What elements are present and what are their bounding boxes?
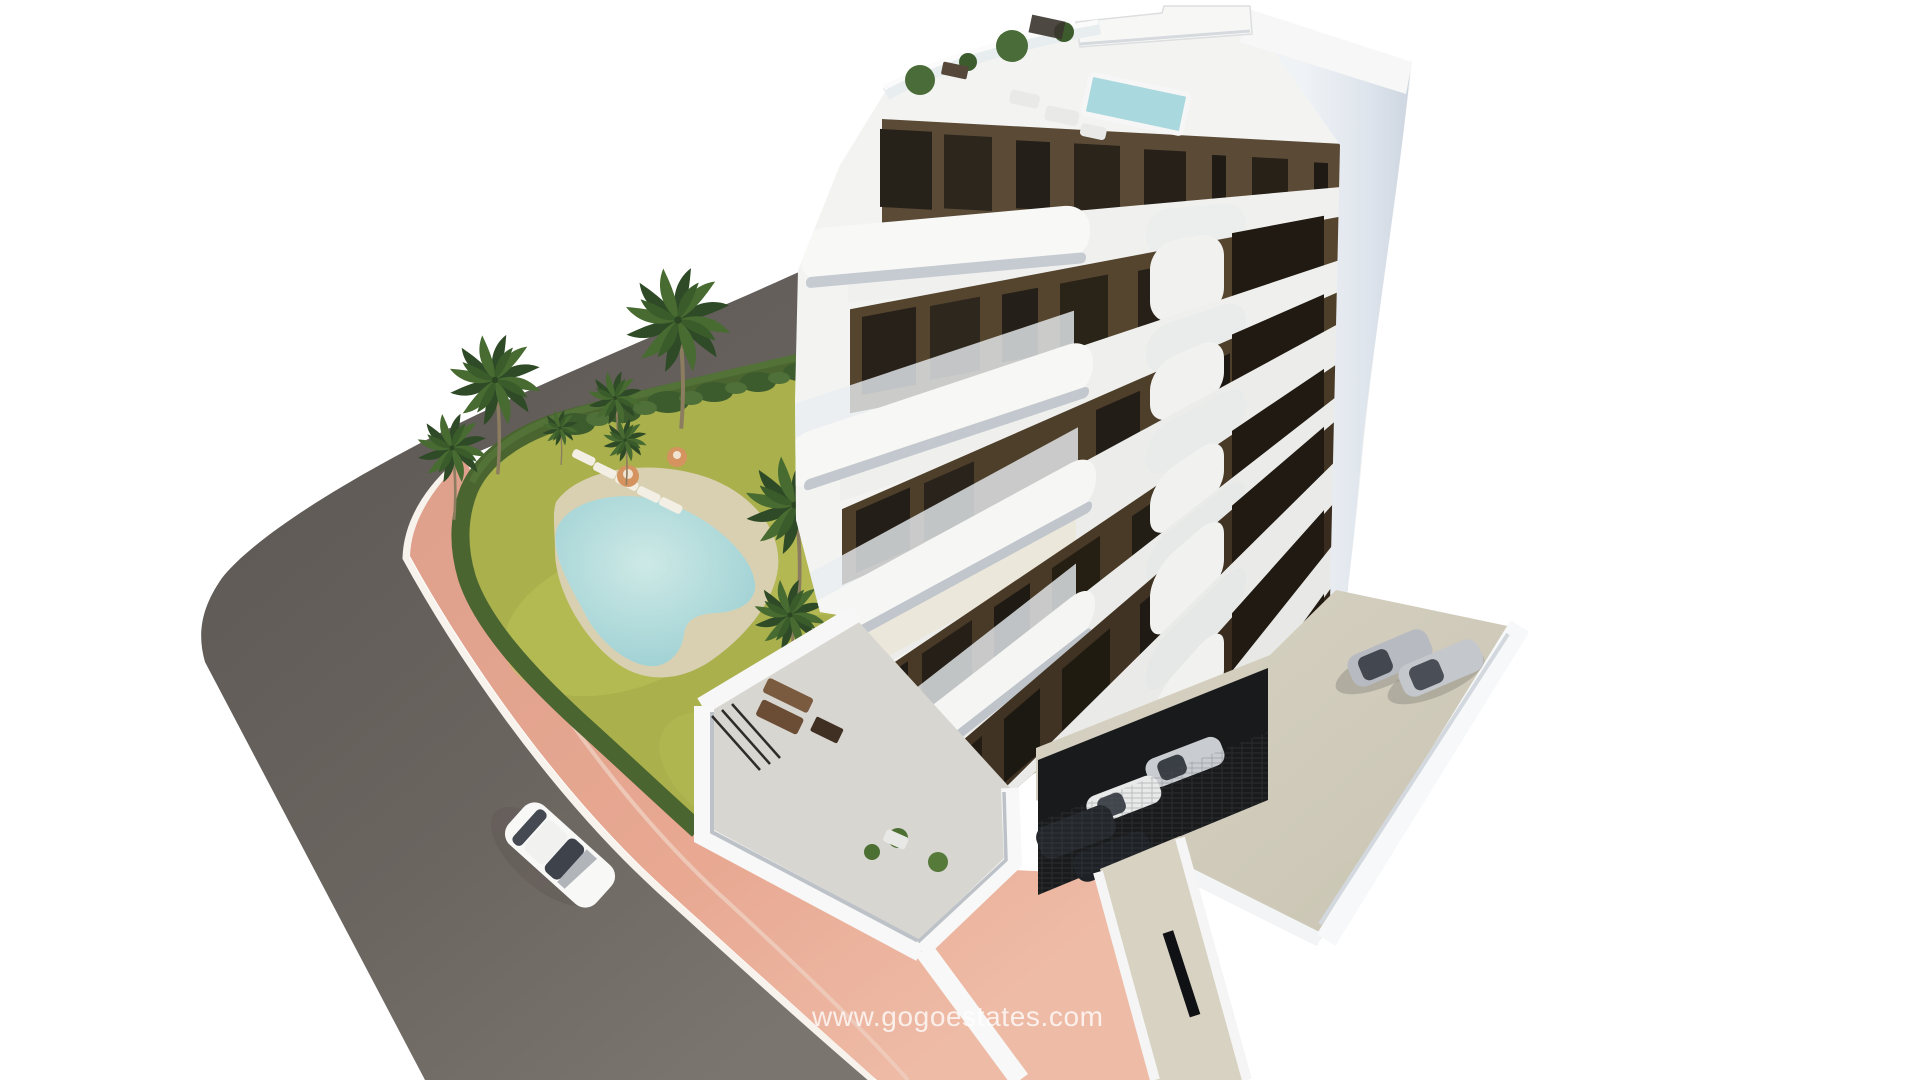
svg-text:www.gogoestates.com: www.gogoestates.com (811, 1001, 1104, 1032)
